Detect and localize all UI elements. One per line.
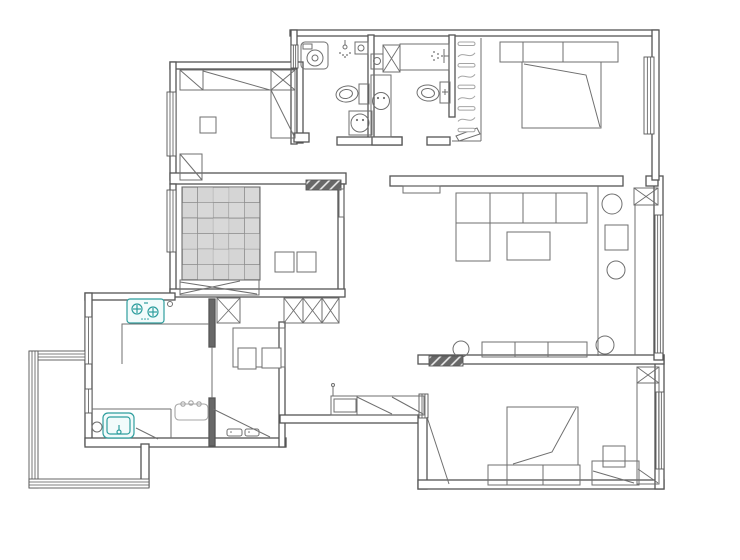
- tatami-mat: [182, 187, 260, 280]
- dining-area: [233, 328, 285, 369]
- washer-drawer: [303, 44, 312, 49]
- slider-panel: [209, 299, 215, 347]
- shoe: [227, 429, 242, 436]
- washer-drum: [307, 50, 323, 66]
- balcony-window-bottom: [29, 479, 149, 488]
- toilet-bowl: [416, 84, 440, 102]
- plant: [596, 336, 614, 354]
- window: [167, 92, 176, 156]
- entry: [175, 401, 270, 437]
- toilet-bowl-inner: [421, 88, 435, 98]
- gas-valve: [168, 302, 173, 307]
- wall-bath2-right: [449, 35, 455, 117]
- hall-closet: [217, 298, 240, 323]
- window: [85, 389, 92, 413]
- closet-hangers: [458, 42, 475, 132]
- washer-drum-inner: [312, 55, 318, 61]
- door-track: [306, 180, 341, 190]
- stove-knobs: [141, 318, 149, 320]
- sink-taps: [356, 119, 364, 121]
- wall-living-top-a: [390, 176, 623, 186]
- shower-spray: [339, 52, 351, 58]
- wardrobe: [180, 70, 295, 90]
- balcony-window-left: [29, 351, 38, 488]
- window: [655, 215, 663, 353]
- leisure-table: [605, 225, 628, 250]
- dining-chair: [238, 348, 256, 369]
- leisure-chair: [607, 261, 625, 279]
- door-swing: [427, 417, 449, 484]
- hall-cabinet-box: [334, 399, 356, 412]
- double-bed: [522, 62, 601, 128]
- window-vent: [291, 45, 298, 68]
- wall-dining-right: [279, 322, 285, 447]
- bedroom-top-right: [452, 38, 618, 141]
- window: [167, 190, 176, 252]
- wall-bedroomTL-top: [170, 62, 298, 69]
- drain: [92, 422, 102, 432]
- sink-basin: [373, 93, 390, 110]
- headboard-shelf: [500, 42, 618, 62]
- floor-cushion: [297, 252, 316, 272]
- bedroom-top-left: [180, 70, 295, 180]
- hall-closet: [303, 298, 322, 323]
- console-ledge: [403, 186, 440, 193]
- wall-top: [290, 30, 658, 36]
- cabinet-diagonal: [392, 397, 423, 414]
- toilet-bowl: [335, 85, 359, 104]
- sink-basin: [351, 114, 369, 132]
- wall-bath2-bottom-l: [372, 137, 402, 145]
- entry-bench: [175, 404, 208, 420]
- window: [85, 317, 92, 364]
- bathroom-1: [301, 40, 372, 135]
- tatami-room: [180, 187, 316, 295]
- wall-kitchen-left: [85, 293, 92, 445]
- bed-blanket-fold: [524, 64, 600, 127]
- window: [644, 57, 654, 134]
- hall-closet: [322, 298, 339, 323]
- toilet-bowl-inner: [339, 89, 353, 100]
- floor-cushion: [275, 252, 294, 272]
- sofa-chaise: [456, 223, 490, 261]
- wall-corridor-bottom: [280, 415, 426, 423]
- leisure-chair: [602, 194, 622, 214]
- bathroom-2: [371, 44, 480, 141]
- bed-blanket-fold: [513, 408, 576, 464]
- slider-panel: [209, 398, 215, 446]
- lamp: [332, 384, 335, 387]
- sink-taps: [377, 97, 385, 99]
- counter-edge: [122, 324, 209, 364]
- stool: [200, 117, 216, 133]
- hall-closet: [284, 298, 303, 323]
- wardrobe-diagonal: [180, 70, 203, 90]
- floor-plan: [0, 0, 740, 560]
- counter-top: [400, 44, 449, 70]
- door-track: [429, 356, 463, 366]
- kitchen: [92, 299, 209, 439]
- wall-entry-bottom: [85, 438, 286, 447]
- shower-spray: [431, 51, 443, 61]
- window: [656, 392, 664, 469]
- desk-chair: [603, 446, 625, 467]
- drain: [358, 45, 364, 51]
- sofa: [456, 193, 587, 223]
- floor-plan-canvas: [0, 0, 740, 560]
- coffee-table: [507, 232, 550, 260]
- dining-chair: [262, 348, 281, 368]
- wall-bath2-bottom-r: [427, 137, 450, 145]
- shower-head: [343, 45, 347, 49]
- double-bed: [507, 407, 578, 465]
- bedroom-bottom-right: [427, 367, 659, 485]
- drain-box: [355, 42, 368, 54]
- wall-bedroomBR-left: [418, 415, 427, 489]
- wall-bedroomTL-right: [297, 62, 303, 143]
- shoe-dots: [230, 431, 250, 433]
- cabinet-diagonal: [357, 397, 392, 414]
- column: [383, 45, 400, 72]
- living-room: [403, 186, 658, 357]
- wall-stub: [294, 133, 309, 142]
- wardrobe-diagonal: [203, 71, 270, 90]
